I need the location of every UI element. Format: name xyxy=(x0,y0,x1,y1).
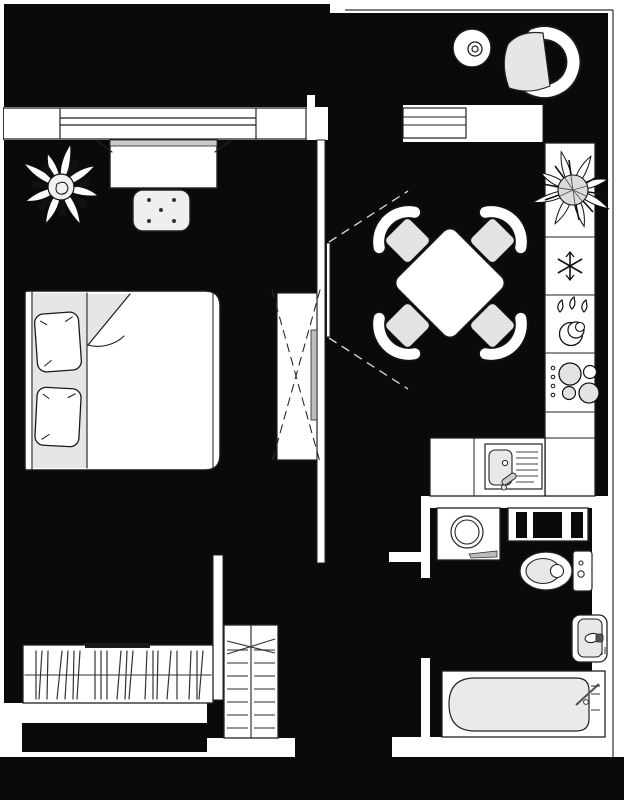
round-side-table xyxy=(453,29,491,67)
pillow xyxy=(35,387,82,447)
storage-cabinet xyxy=(508,508,588,541)
bathroom-bottom-wall xyxy=(392,737,608,757)
stool xyxy=(133,190,190,231)
bedroom-window xyxy=(0,107,328,140)
desk xyxy=(97,140,230,188)
double-bed xyxy=(25,291,220,470)
floor-plan-drawing xyxy=(0,0,624,800)
pillow xyxy=(34,312,82,373)
clothes-closet xyxy=(23,643,213,703)
sliding-door-leaf xyxy=(327,243,331,337)
bathroom-top-wall xyxy=(421,496,605,508)
hall-stub-wall xyxy=(213,555,223,700)
bottom-black-band xyxy=(0,757,624,800)
kitchen-sink xyxy=(485,444,542,491)
toilet xyxy=(520,551,592,591)
wall-slot xyxy=(307,95,315,110)
shelving-unit xyxy=(224,625,278,738)
washing-machine xyxy=(437,508,500,560)
washbasin xyxy=(572,615,607,662)
bathtub xyxy=(442,671,605,737)
sliding-wardrobe xyxy=(272,290,320,462)
bedroom-partition-wall xyxy=(317,140,325,563)
balcony-window-and-door xyxy=(403,105,543,142)
bathroom-left-wall-upper xyxy=(421,496,430,578)
floor-plan xyxy=(0,0,624,800)
bathroom-left-wall-lower xyxy=(421,658,430,737)
bathroom-door-jamb xyxy=(389,552,430,562)
